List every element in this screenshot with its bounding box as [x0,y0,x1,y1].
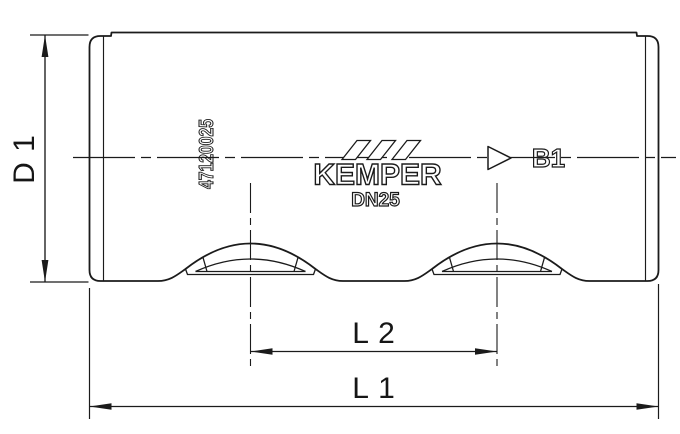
technical-drawing-canvas: 47120025 KEMPER DN25 B1 D 1 L 2 L 1 [0,0,680,434]
flow-direction-icon [488,147,511,170]
right-cap-facet-right [541,258,545,272]
brand-slash-2 [367,141,396,160]
l1-label: L 1 [352,372,396,405]
dimension-l2: L 2 [251,317,498,355]
l1-arrow-right-icon [637,403,659,410]
l2-label: L 2 [352,317,396,350]
left-cap-facet-right [294,258,298,272]
brand-slash-3 [392,141,421,160]
brand-slash-1 [342,141,371,160]
d1-label: D 1 [8,134,41,184]
l1-arrow-left-icon [90,403,112,410]
flow-port-label: B1 [532,143,565,173]
d1-arrow-down-icon [42,260,49,282]
brand-logo: KEMPER DN25 [313,141,442,212]
part-number-label: 47120025 [196,119,218,189]
brand-slashes-icon [342,141,421,160]
brand-name-label: KEMPER [313,159,442,192]
d1-arrow-up-icon [42,35,49,57]
dimension-d1: D 1 [8,35,89,282]
left-cap-facet-left [203,258,207,272]
nominal-diameter-label: DN25 [351,190,400,211]
l2-arrow-left-icon [251,348,273,355]
right-cap-facet-left [450,258,454,272]
l2-arrow-right-icon [475,348,497,355]
